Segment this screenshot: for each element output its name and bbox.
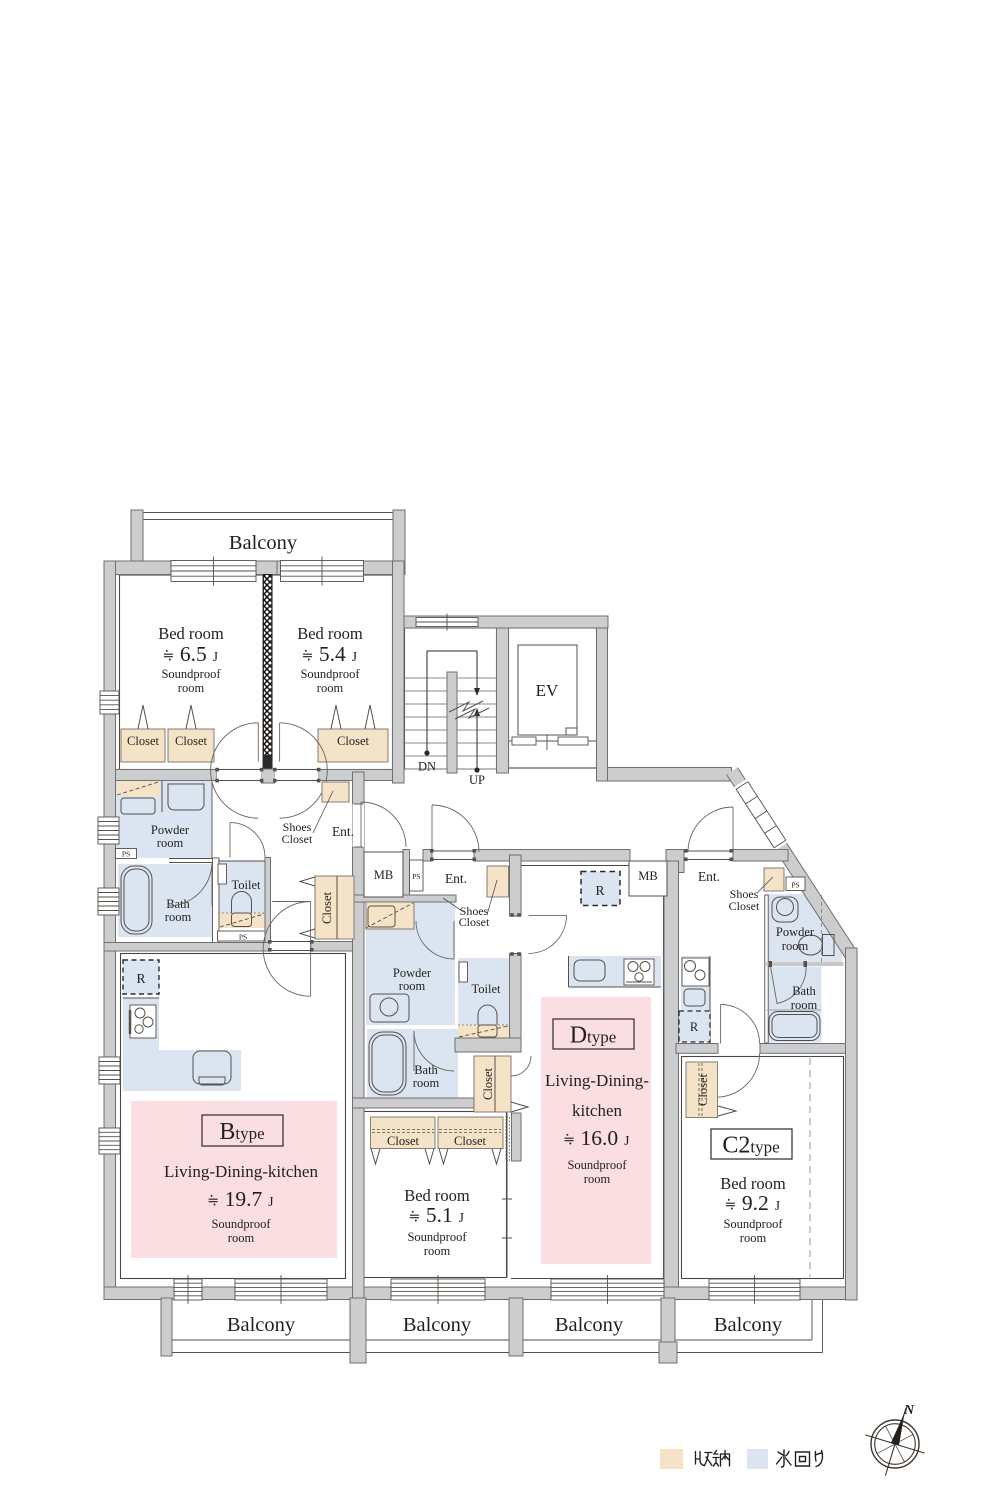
svg-text:room: room [424,1244,451,1258]
svg-text:J: J [268,1194,273,1209]
svg-text:J: J [352,649,357,664]
svg-text:Toilet: Toilet [472,982,502,996]
svg-text:kitchen: kitchen [572,1101,623,1120]
svg-text:Ent.: Ent. [698,869,720,884]
svg-text:Bed room: Bed room [297,624,363,643]
svg-text:Soundproof: Soundproof [407,1230,467,1244]
svg-text:J: J [459,1210,464,1225]
svg-text:Soundproof: Soundproof [567,1158,627,1172]
svg-text:Bed room: Bed room [158,624,224,643]
svg-text:room: room [178,681,205,695]
svg-text:room: room [228,1231,255,1245]
svg-text:Living-Dining-: Living-Dining- [545,1071,649,1090]
svg-text:Soundproof: Soundproof [161,667,221,681]
svg-text:room: room [157,836,184,850]
svg-text:Closet: Closet [729,899,760,913]
svg-text:Balcony: Balcony [403,1314,472,1336]
svg-text:Soundproof: Soundproof [211,1217,271,1231]
svg-text:Closet: Closet [696,1074,710,1106]
svg-text:DN: DN [418,760,436,774]
svg-text:Powder: Powder [393,966,432,980]
svg-text:J: J [775,1198,780,1213]
svg-text:19.7: 19.7 [225,1187,263,1211]
svg-text:MB: MB [374,868,393,882]
svg-text:Closet: Closet [175,734,207,748]
svg-text:9.2: 9.2 [742,1191,769,1215]
svg-text:Powder: Powder [776,925,815,939]
svg-text:N: N [903,1403,915,1418]
svg-text:Balcony: Balcony [229,532,298,554]
svg-text:Balcony: Balcony [555,1314,624,1336]
svg-text:Soundproof: Soundproof [300,667,360,681]
svg-text:Soundproof: Soundproof [723,1217,783,1231]
svg-text:Ent.: Ent. [332,824,354,839]
svg-text:5.4: 5.4 [319,642,346,666]
svg-text:Bath: Bath [414,1063,438,1077]
svg-text:room: room [782,939,809,953]
svg-text:PS: PS [412,872,420,881]
svg-text:16.0: 16.0 [581,1126,619,1150]
svg-text:Bath: Bath [792,984,816,998]
svg-text:Closet: Closet [282,832,313,846]
svg-text:Ent.: Ent. [445,871,467,886]
svg-text:Bath: Bath [166,897,190,911]
svg-text:UP: UP [469,773,485,787]
svg-text:PS: PS [239,933,247,942]
svg-text:Closet: Closet [481,1068,495,1100]
svg-text:room: room [791,998,818,1012]
svg-text:J: J [213,649,218,664]
svg-text:room: room [584,1172,611,1186]
svg-text:PS: PS [122,850,130,859]
svg-text:EV: EV [536,681,559,700]
svg-text:Closet: Closet [337,734,369,748]
svg-text:J: J [624,1133,629,1148]
svg-text:Closet: Closet [459,915,490,929]
svg-text:Toilet: Toilet [232,878,262,892]
svg-text:5.1: 5.1 [426,1203,453,1227]
svg-text:R: R [136,971,145,986]
svg-text:R: R [595,883,604,898]
svg-text:room: room [413,1076,440,1090]
svg-text:Balcony: Balcony [714,1314,783,1336]
svg-text:room: room [399,979,426,993]
svg-text:6.5: 6.5 [180,642,207,666]
svg-text:room: room [740,1231,767,1245]
svg-text:Balcony: Balcony [227,1314,296,1336]
svg-text:room: room [317,681,344,695]
svg-text:Closet: Closet [320,892,334,924]
svg-text:room: room [165,910,192,924]
svg-text:PS: PS [791,881,799,890]
svg-text:Living-Dining-kitchen: Living-Dining-kitchen [164,1162,318,1181]
svg-text:Powder: Powder [151,823,190,837]
svg-text:MB: MB [638,869,657,883]
svg-text:Closet: Closet [127,734,159,748]
svg-text:Closet: Closet [454,1134,486,1148]
svg-text:R: R [690,1020,699,1034]
svg-text:Closet: Closet [387,1134,419,1148]
